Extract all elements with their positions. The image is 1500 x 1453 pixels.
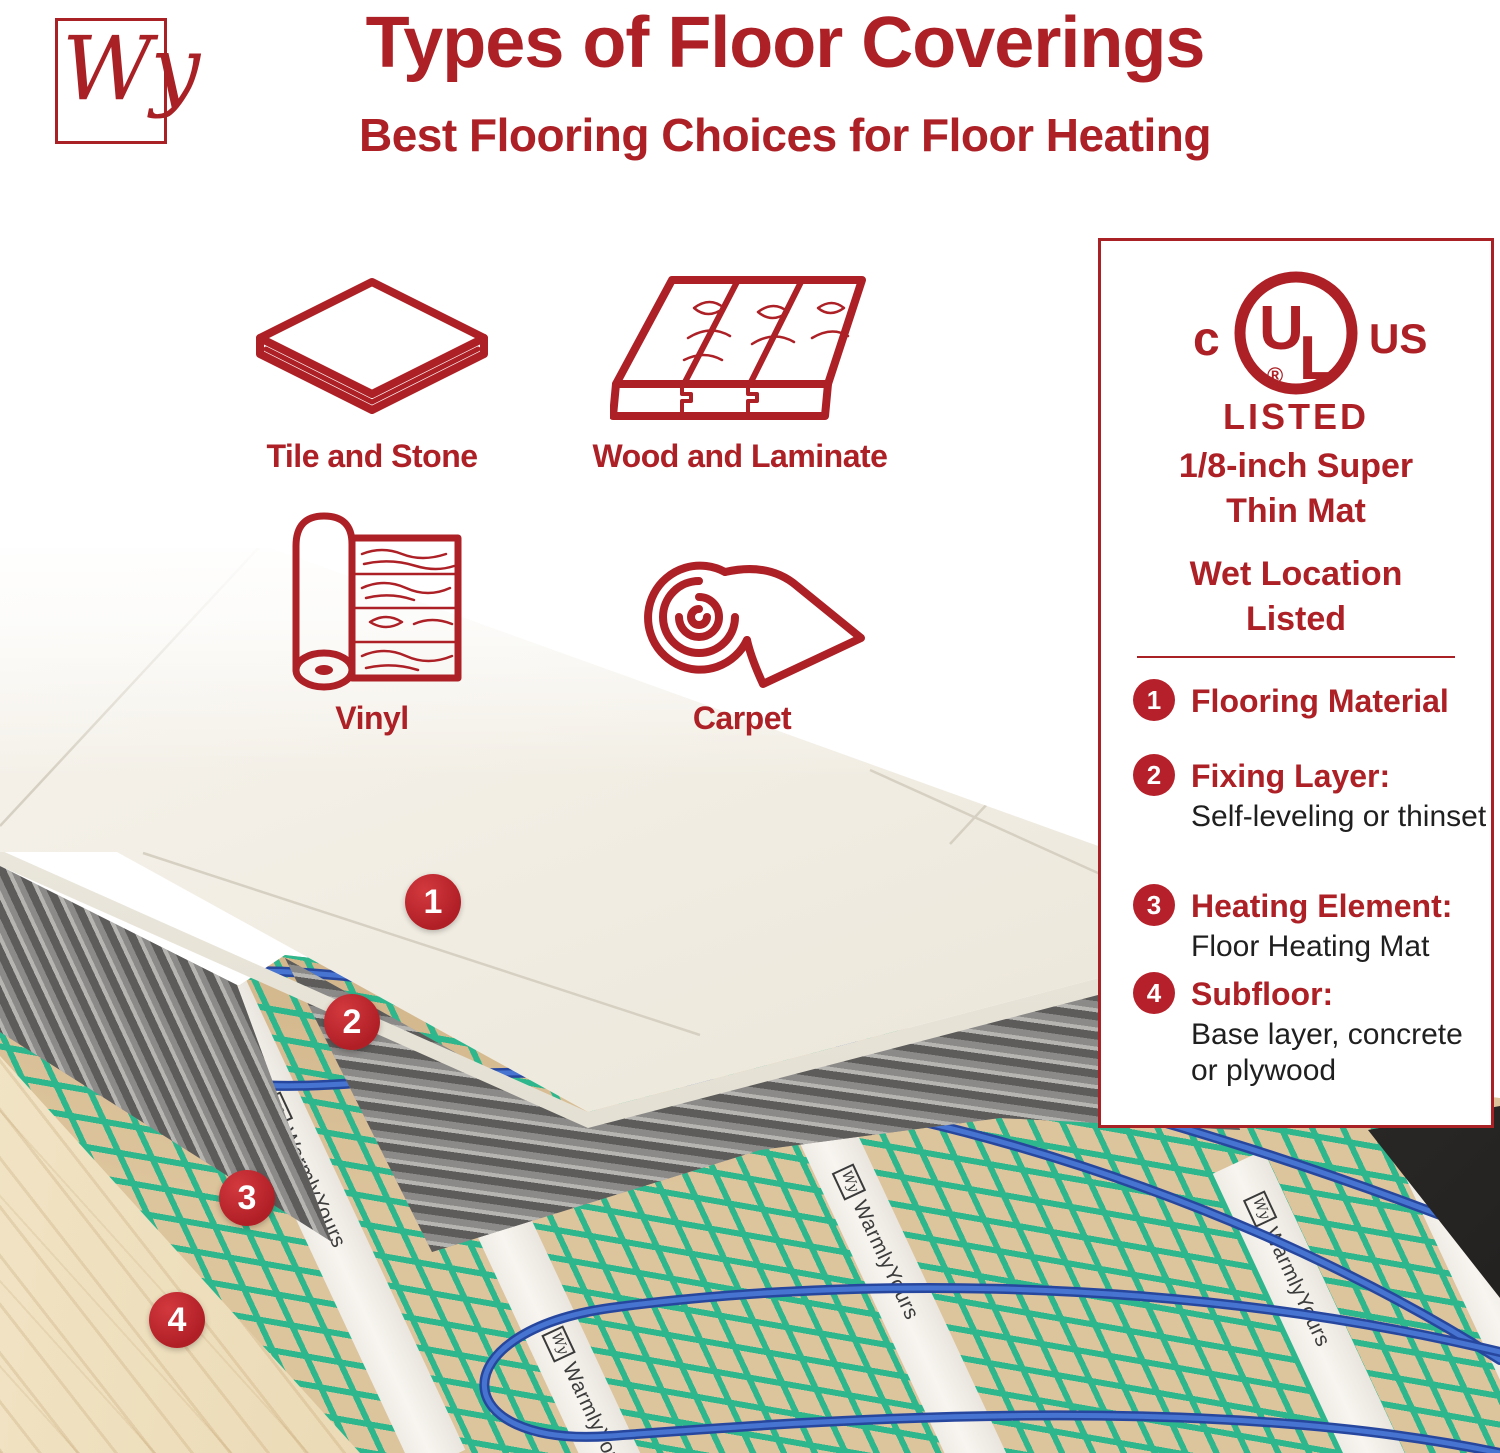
svg-text:®: ® [1267, 363, 1283, 388]
legend-desc: Base layer, concrete or plywood [1191, 1017, 1491, 1090]
tile-icon [252, 276, 492, 431]
feature-thin-mat: 1/8-inch Super Thin Mat [1101, 444, 1491, 534]
svg-text:LISTED: LISTED [1223, 396, 1369, 437]
legend-desc: Self-leveling or thinset [1191, 799, 1491, 836]
callout-badge-4: 4 [149, 1292, 205, 1348]
legend-item-subfloor: 4 Subfloor: Base layer, concrete or plyw… [1133, 972, 1491, 1090]
legend-title: Fixing Layer: [1191, 759, 1491, 795]
flooring-label-carpet: Carpet [542, 700, 942, 737]
callout-badge-1: 1 [405, 874, 461, 930]
cert-panel: U L ® c US LISTED 1/8-inch Super Thin Ma… [1098, 238, 1494, 1128]
feature-line: 1/8-inch Super [1101, 444, 1491, 489]
vinyl-icon [274, 504, 474, 694]
ul-listed-mark: U L ® c US LISTED [1101, 257, 1491, 437]
legend-badge-3: 3 [1133, 884, 1175, 926]
callout-badge-3: 3 [219, 1170, 275, 1226]
legend-item-heating: 3 Heating Element: Floor Heating Mat [1133, 884, 1491, 965]
infographic-root: Wy WarmlyYours Wy WarmlyYours Wy WarmlyY… [0, 0, 1500, 1453]
svg-text:US: US [1369, 315, 1427, 362]
feature-line: Wet Location [1101, 552, 1491, 597]
flooring-label-tile: Tile and Stone [192, 438, 552, 475]
svg-text:U: U [1259, 294, 1304, 363]
svg-text:L: L [1299, 324, 1337, 393]
feature-line: Listed [1101, 597, 1491, 642]
page-title: Types of Floor Coverings [70, 6, 1500, 82]
ul-logo-icon: U L ® c US LISTED [1131, 257, 1461, 437]
legend-item-fixing: 2 Fixing Layer: Self-leveling or thinset [1133, 754, 1491, 835]
flooring-label-vinyl: Vinyl [192, 700, 552, 737]
legend-item-flooring: 1 Flooring Material [1133, 679, 1491, 724]
feature-wet-location: Wet Location Listed [1101, 552, 1491, 642]
legend-title: Flooring Material [1191, 684, 1491, 720]
svg-text:c: c [1193, 313, 1220, 366]
legend-badge-1: 1 [1133, 679, 1175, 721]
legend-badge-4: 4 [1133, 972, 1175, 1014]
legend-badge-2: 2 [1133, 754, 1175, 796]
callout-badge-2: 2 [324, 994, 380, 1050]
legend-desc: Floor Heating Mat [1191, 929, 1491, 966]
flooring-label-wood: Wood and Laminate [540, 438, 940, 475]
legend-title: Subfloor: [1191, 977, 1491, 1013]
legend-title: Heating Element: [1191, 889, 1491, 925]
panel-divider [1137, 656, 1455, 658]
page-subtitle: Best Flooring Choices for Floor Heating [70, 108, 1500, 162]
feature-line: Thin Mat [1101, 489, 1491, 534]
carpet-icon [617, 522, 867, 697]
wood-icon [610, 272, 870, 432]
